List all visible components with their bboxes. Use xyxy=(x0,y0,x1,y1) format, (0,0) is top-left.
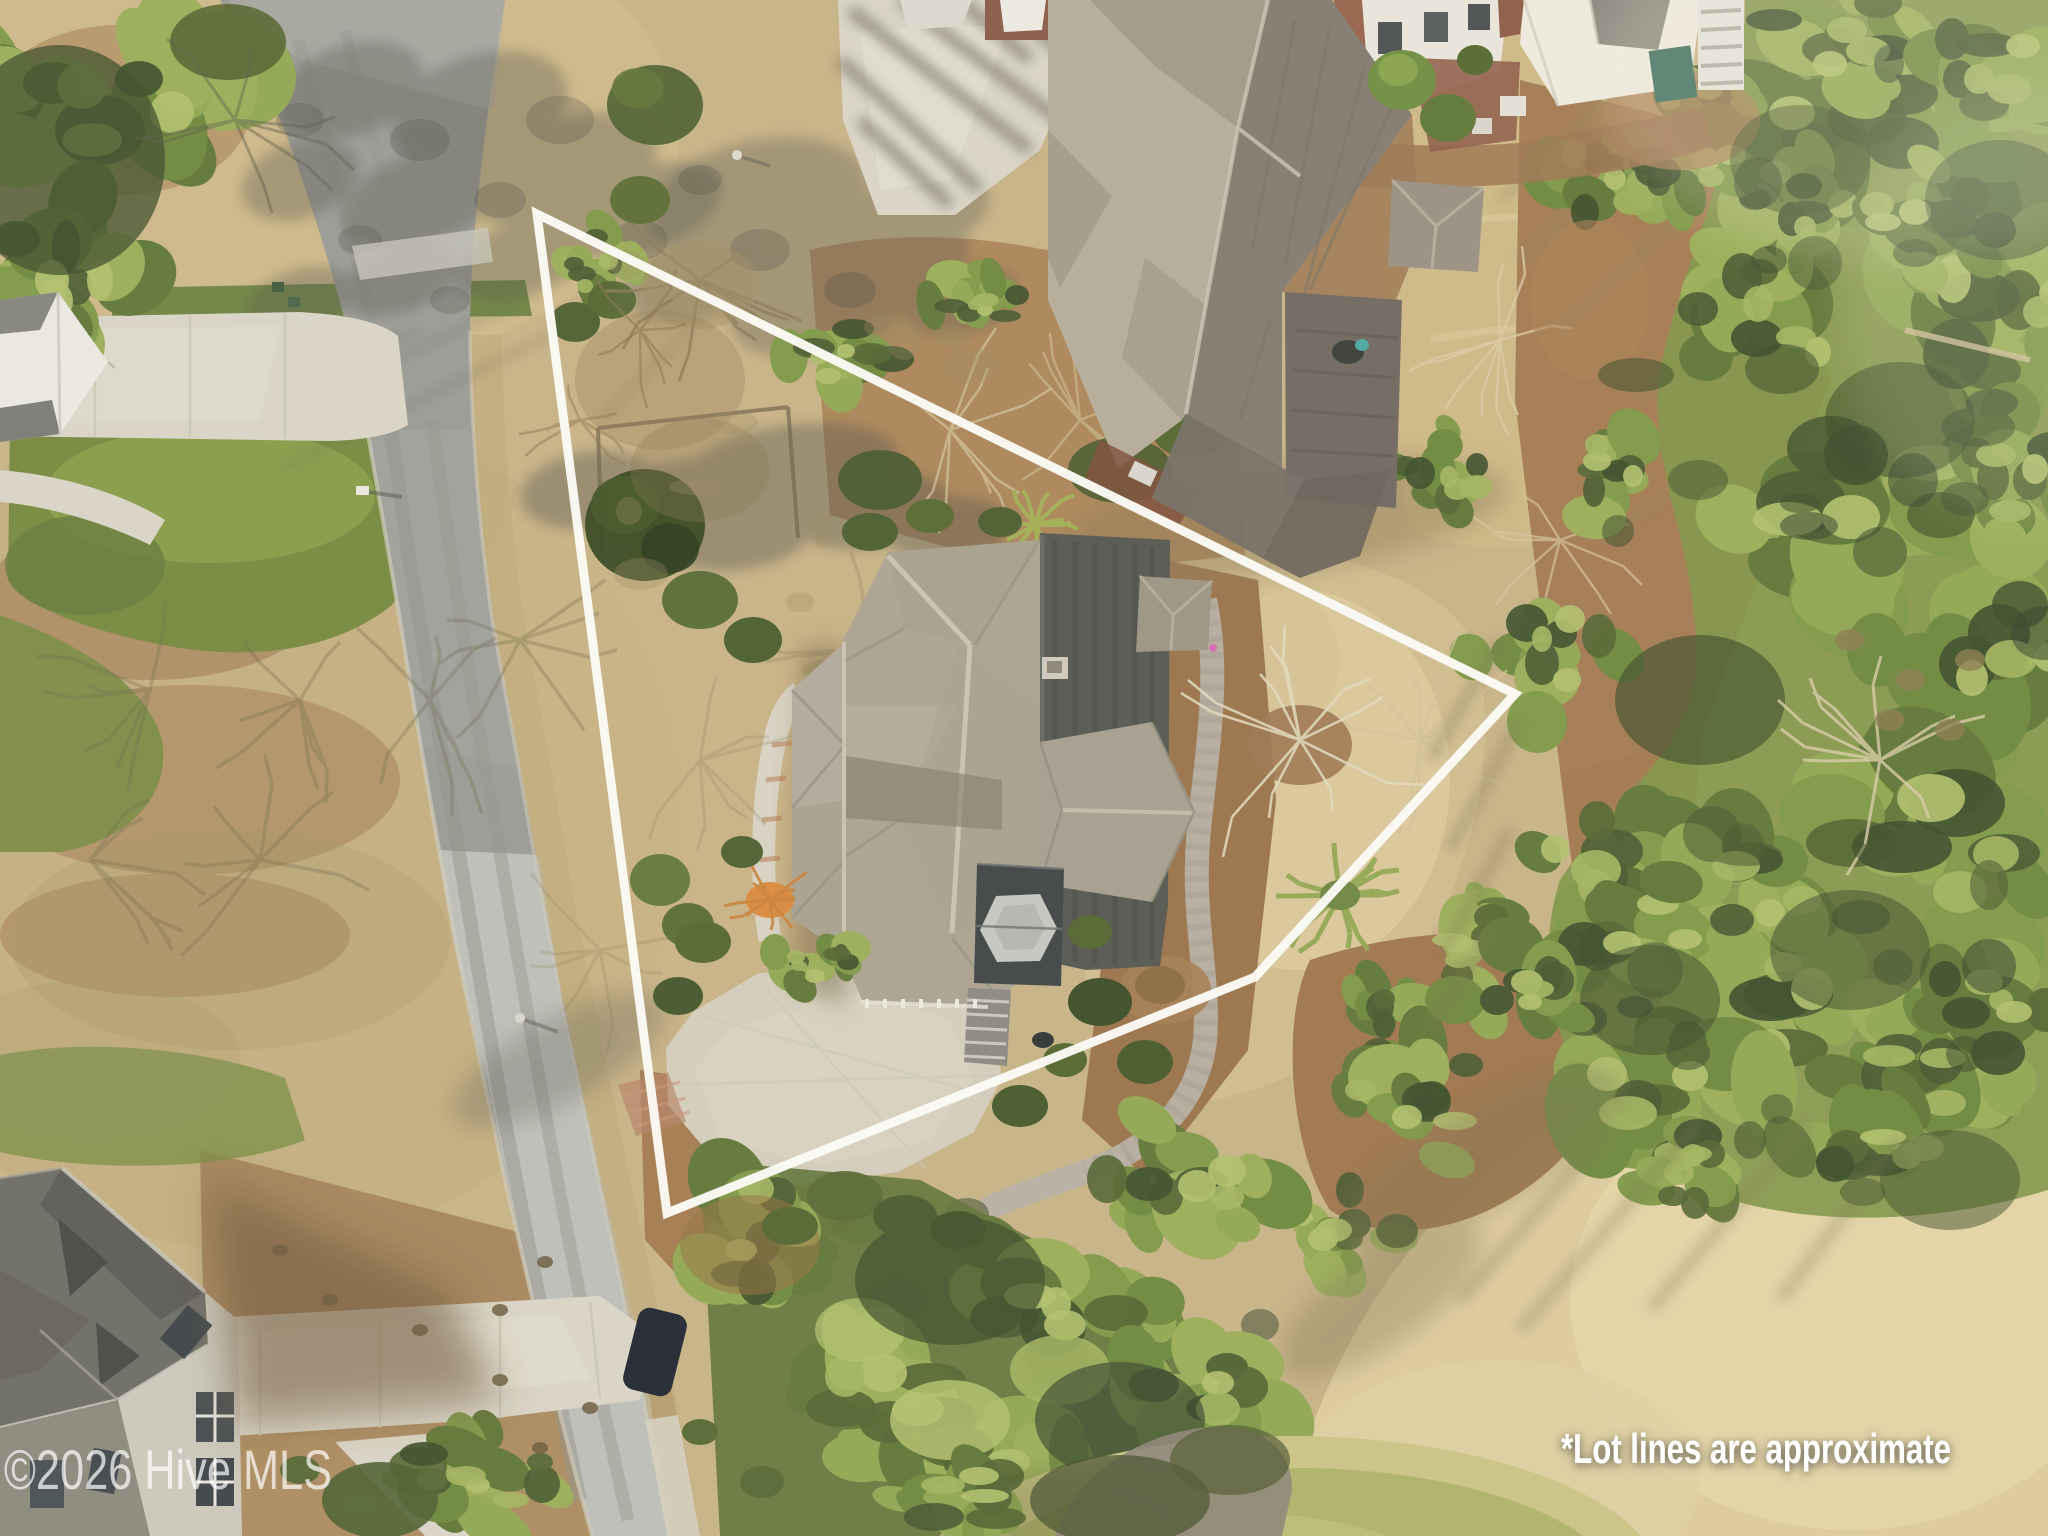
svg-text:©2026 Hive MLS: ©2026 Hive MLS xyxy=(4,1438,332,1501)
svg-text:*Lot lines are approximate: *Lot lines are approximate xyxy=(1561,1425,1951,1472)
